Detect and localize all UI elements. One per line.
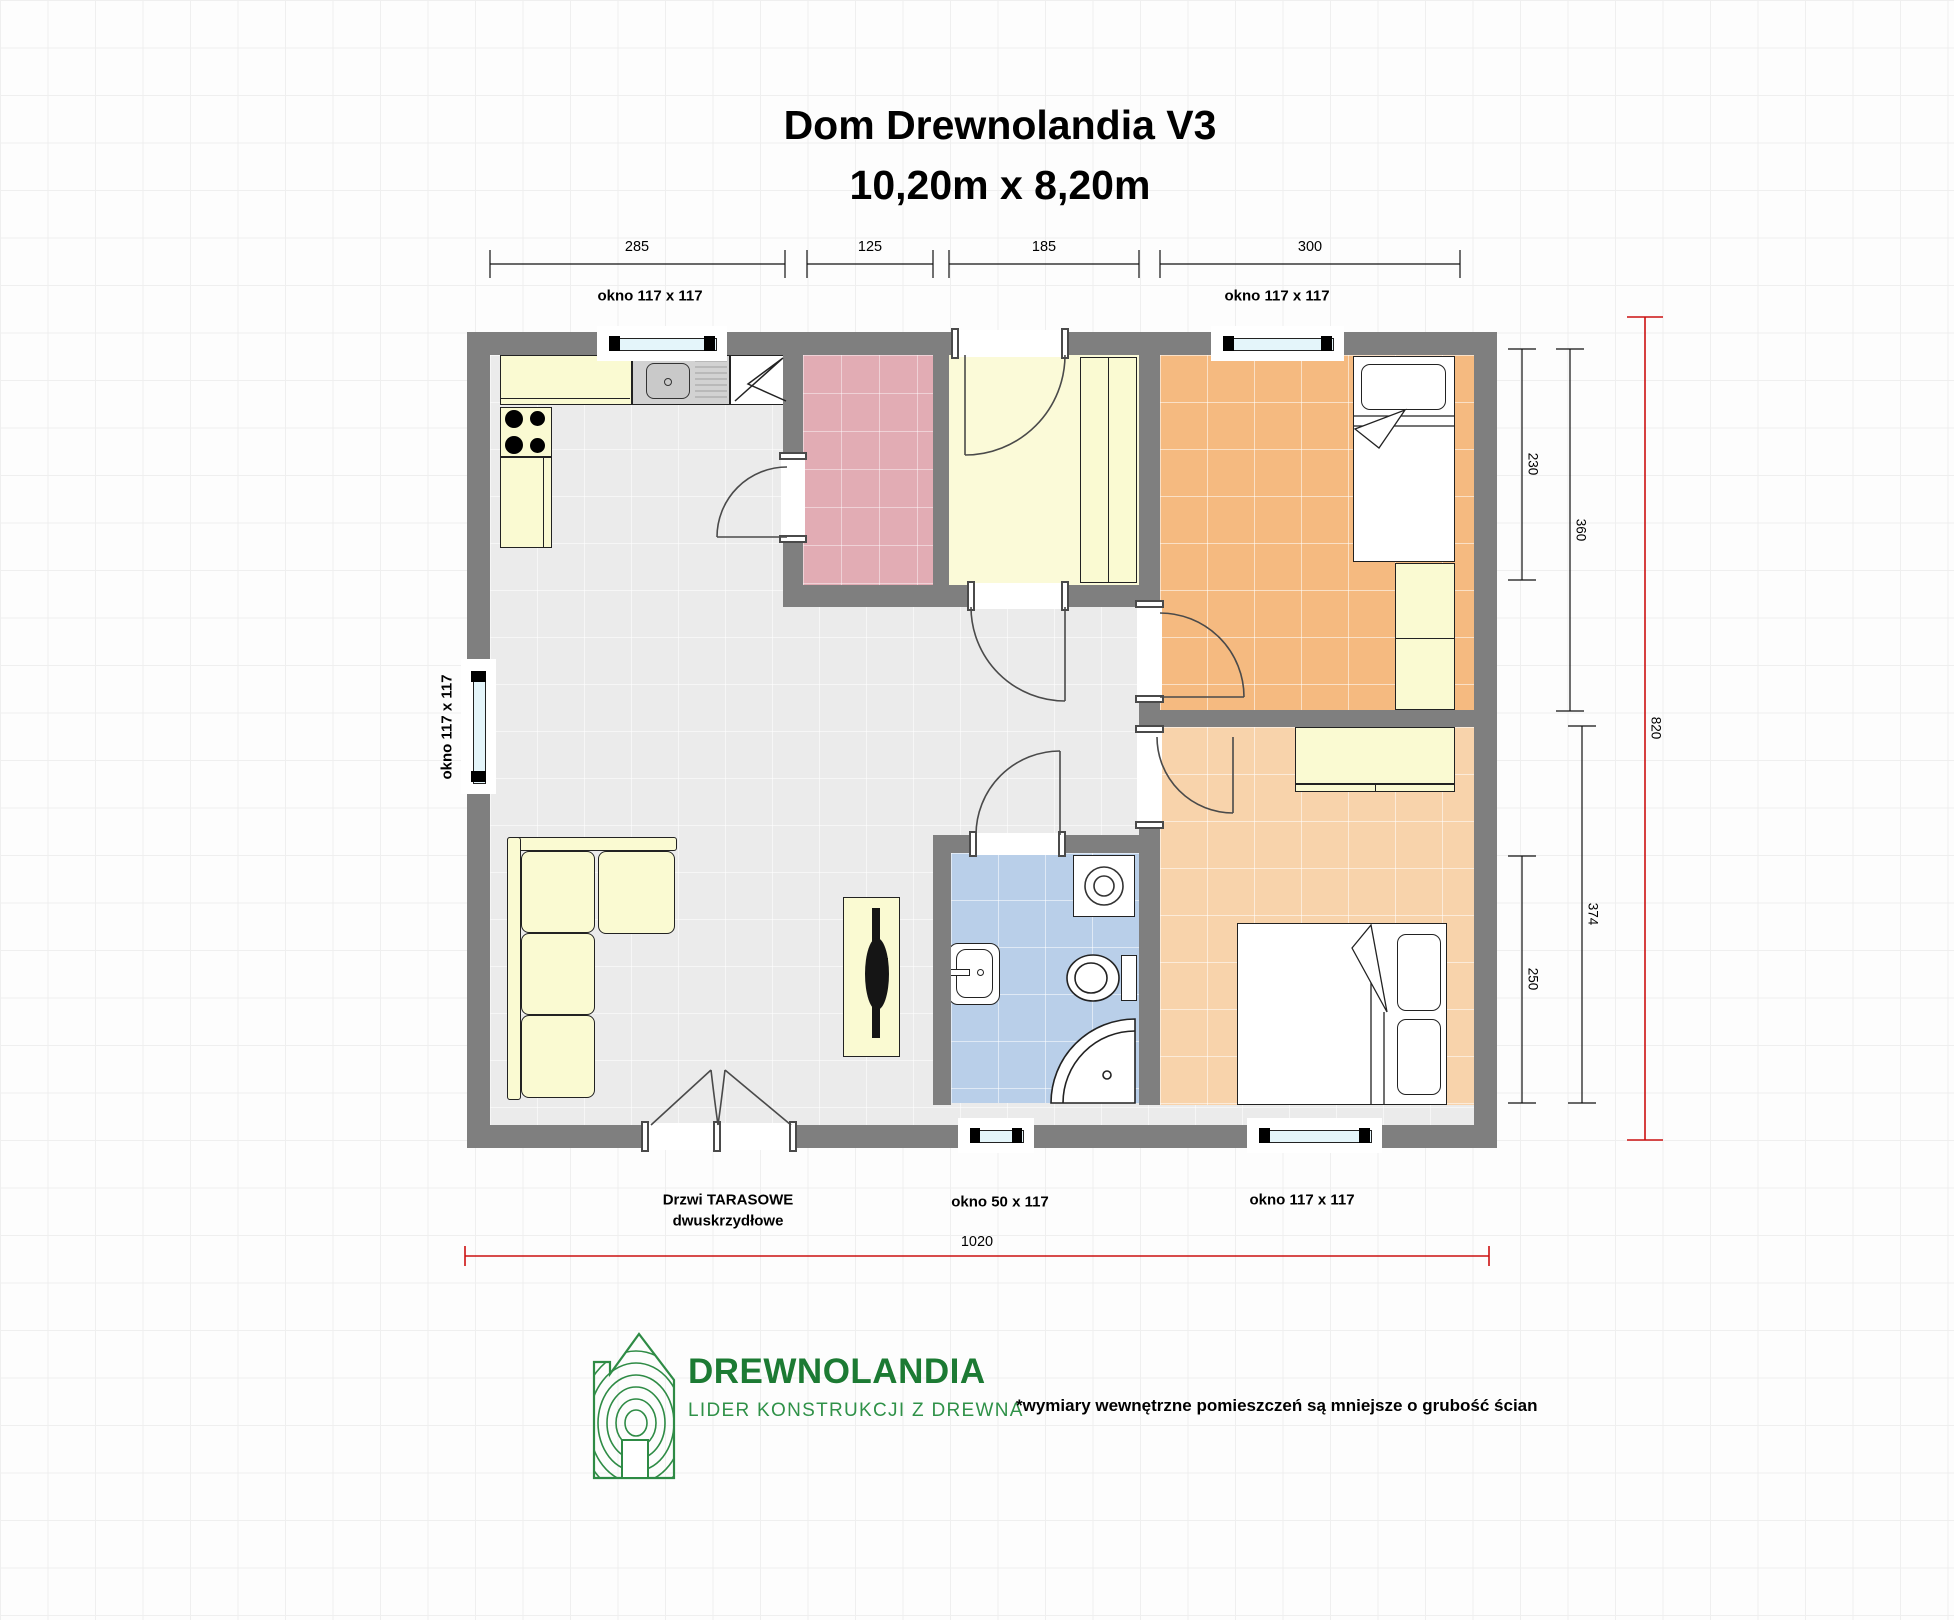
dim-right-360: 360 [1574,519,1589,542]
door-arcs [651,355,1244,1125]
corner-shower [1051,1019,1135,1103]
footnote: *wymiary wewnętrzne pomieszczeń są mniej… [1016,1396,1538,1416]
dimension-lines-black [490,250,1596,1103]
brand-name: DREWNOLANDIA [688,1352,986,1392]
dimension-lines-red [465,317,1663,1266]
brand-tagline: LIDER KONSTRUKCJI Z DREWNA [688,1400,1024,1422]
tv-icon [865,908,889,1038]
label-terrace-door-line2: dwuskrzydłowe [673,1213,784,1230]
dim-right-374: 374 [1586,903,1601,926]
dim-right-820: 820 [1649,717,1664,740]
dim-top-185: 185 [1032,239,1056,255]
single-bed-blanket [1353,410,1455,448]
label-window-bottom-small: okno 50 x 117 [951,1194,1049,1211]
double-bed-blanket [1352,925,1387,1104]
label-window-left: okno 117 x 117 [439,674,456,779]
dim-top-285: 285 [625,239,649,255]
washer-drum-icon [1085,867,1123,905]
dim-right-230: 230 [1526,453,1541,476]
label-window-bottom-right: okno 117 x 117 [1249,1192,1354,1209]
fridge-zigzag-icon [735,358,786,401]
dim-right-250: 250 [1526,968,1541,991]
dim-top-125: 125 [858,239,882,255]
label-terrace-door-line1: Drzwi TARASOWE [663,1192,794,1209]
dim-bottom-1020: 1020 [961,1234,993,1250]
label-window-top-right: okno 117 x 117 [1224,288,1329,305]
floor-plan-page: { "title": {"line1": "Dom Drewnolandia V… [0,0,1954,1620]
label-window-top-left: okno 117 x 117 [597,288,702,305]
drewnolandia-logo-icon [584,1328,684,1488]
toilet-bowl [1067,955,1119,1001]
dim-top-300: 300 [1298,239,1322,255]
